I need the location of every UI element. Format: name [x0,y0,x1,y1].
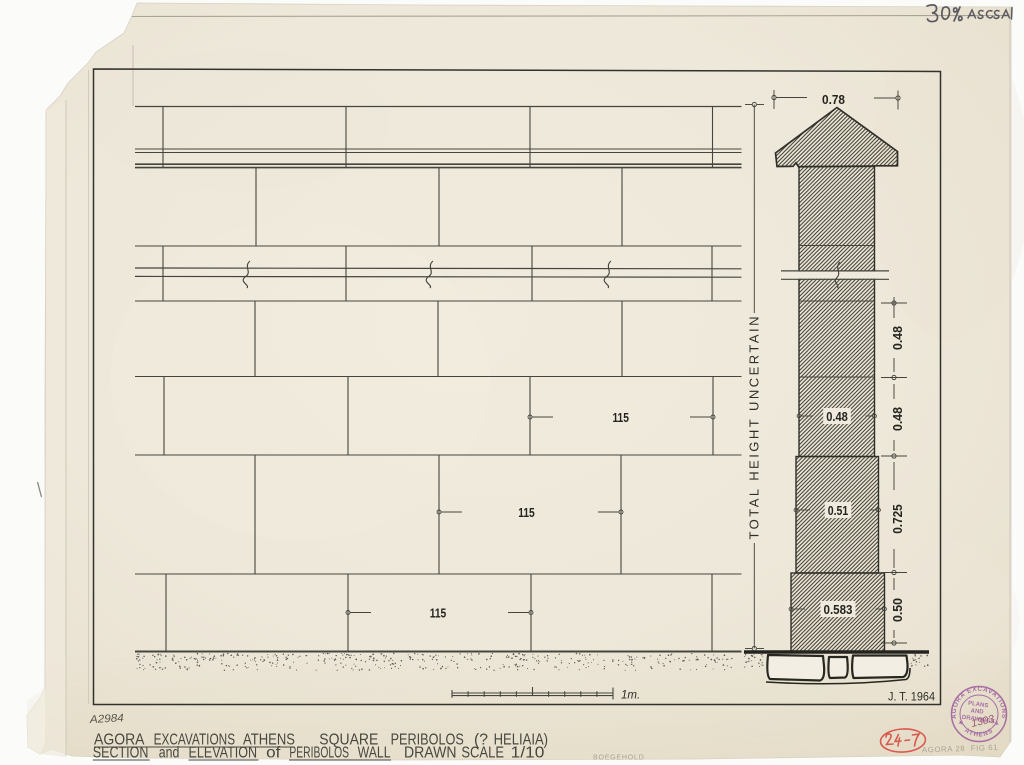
svg-text:115: 115 [430,607,447,621]
svg-text:1/10: 1/10 [511,745,545,762]
svg-text:PERIBOLOS: PERIBOLOS [289,745,349,762]
svg-text:0.48: 0.48 [890,326,905,350]
svg-text:WALL: WALL [358,745,391,762]
svg-text:SCALE: SCALE [461,745,504,762]
svg-text:BOEGEHOLD: BOEGEHOLD [593,755,645,762]
svg-text:0.50: 0.50 [890,598,905,622]
svg-text:0.725: 0.725 [890,504,905,534]
svg-text:0.51: 0.51 [828,504,849,518]
svg-text:DRAWN: DRAWN [404,745,457,762]
svg-text:TOTAL HEIGHT UNCERTAIN: TOTAL HEIGHT UNCERTAIN [747,317,762,540]
svg-text:1m.: 1m. [621,690,640,702]
svg-text:J. T. 1964: J. T. 1964 [888,692,936,704]
svg-text:0.78: 0.78 [822,92,845,107]
svg-text:0.583: 0.583 [824,603,853,617]
svg-text:and: and [159,745,180,762]
svg-text:ELEVATION: ELEVATION [189,745,258,762]
svg-text:SECTION: SECTION [93,745,149,762]
svg-text:A2984: A2984 [88,712,124,726]
svg-text:115: 115 [612,411,629,425]
svg-text:0.48: 0.48 [890,407,905,431]
svg-text:115: 115 [518,506,535,520]
svg-text:0.48: 0.48 [826,410,848,424]
svg-text:of: of [266,745,281,762]
